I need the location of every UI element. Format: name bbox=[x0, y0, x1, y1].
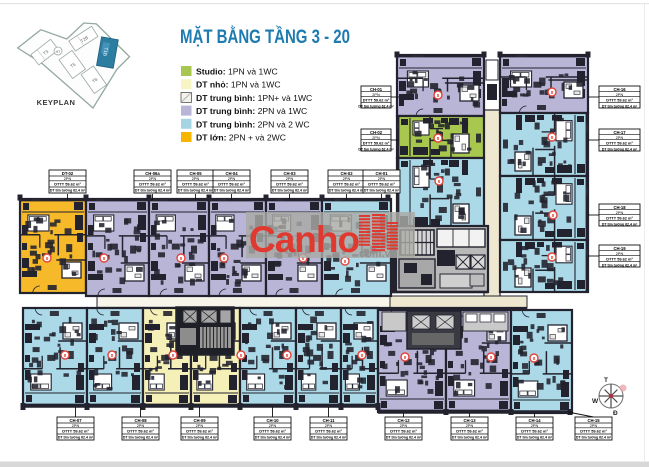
svg-text:DT tim tường 62.4 m²: DT tim tường 62.4 m² bbox=[452, 435, 488, 439]
svg-text:CH-11: CH-11 bbox=[323, 418, 336, 423]
svg-text:DTTT 59.62 m²: DTTT 59.62 m² bbox=[363, 98, 390, 103]
svg-text:DTTT 59.62 m²: DTTT 59.62 m² bbox=[368, 182, 395, 187]
svg-text:2PN: 2PN bbox=[192, 177, 200, 181]
svg-text:DT tim tường 62.4 m²: DT tim tường 62.4 m² bbox=[123, 435, 159, 439]
svg-text:2PN: 2PN bbox=[616, 136, 624, 140]
svg-text:Canho: Canho bbox=[249, 219, 360, 260]
svg-text:DT tim tường 62.4 m²: DT tim tường 62.4 m² bbox=[135, 188, 171, 192]
svg-text:CH-09: CH-09 bbox=[193, 418, 206, 423]
svg-text:2PN: 2PN bbox=[378, 177, 386, 181]
svg-text:CH-18: CH-18 bbox=[613, 205, 626, 210]
svg-text:DT trung bình: 2PN và 1WC: DT trung bình: 2PN và 1WC bbox=[196, 106, 307, 116]
svg-text:DTTT 59.62 m²: DTTT 59.62 m² bbox=[390, 429, 417, 434]
svg-text:CH-07: CH-07 bbox=[69, 418, 82, 423]
svg-text:CH-04: CH-04 bbox=[225, 171, 238, 176]
svg-text:DTTT 59.62 m²: DTTT 59.62 m² bbox=[127, 429, 154, 434]
svg-text:DT tim tường 62.4 m²: DT tim tường 62.4 m² bbox=[272, 188, 308, 192]
svg-text:DT tim tường 62.4 m²: DT tim tường 62.4 m² bbox=[602, 147, 638, 151]
svg-text:DT tim tường 62.4 m²: DT tim tường 62.4 m² bbox=[255, 435, 291, 439]
svg-text:CH-17: CH-17 bbox=[613, 130, 626, 135]
svg-text:CH-01: CH-01 bbox=[370, 87, 383, 92]
svg-text:DTTT 59.62 m²: DTTT 59.62 m² bbox=[218, 182, 245, 187]
svg-text:2PN: 2PN bbox=[531, 424, 539, 428]
svg-text:DT trung bình: 1PN+ và 1WC: DT trung bình: 1PN+ và 1WC bbox=[196, 93, 312, 103]
svg-text:2PN: 2PN bbox=[149, 177, 157, 181]
svg-text:2PN: 2PN bbox=[616, 252, 624, 256]
svg-text:2PN: 2PN bbox=[325, 424, 333, 428]
svg-text:CH-06a: CH-06a bbox=[145, 171, 160, 176]
svg-text:2PN: 2PN bbox=[72, 424, 80, 428]
svg-text:Studio: 1PN và 1WC: Studio: 1PN và 1WC bbox=[196, 67, 278, 77]
svg-text:DTTT 59.62 m²: DTTT 59.62 m² bbox=[606, 257, 633, 262]
svg-text:CH-08: CH-08 bbox=[134, 418, 147, 423]
svg-text:DTTT 59.62 m²: DTTT 59.62 m² bbox=[333, 182, 360, 187]
svg-text:DT tim tường 62.4 m²: DT tim tường 62.4 m² bbox=[364, 188, 400, 192]
svg-text:2PN: 2PN bbox=[616, 211, 624, 215]
svg-text:CH-16: CH-16 bbox=[613, 87, 626, 92]
svg-text:DTTT 59.62 m²: DTTT 59.62 m² bbox=[62, 429, 89, 434]
svg-text:DT tim tường 62.4 m²: DT tim tường 62.4 m² bbox=[602, 222, 638, 226]
svg-text:2PN: 2PN bbox=[228, 177, 236, 181]
svg-text:2PN: 2PN bbox=[286, 177, 294, 181]
svg-text:2PN: 2PN bbox=[343, 177, 351, 181]
svg-text:DTTT 59.62 m²: DTTT 59.62 m² bbox=[276, 182, 303, 187]
svg-text:DT tim tường 62.4 m²: DT tim tường 62.4 m² bbox=[311, 435, 347, 439]
svg-text:2PN: 2PN bbox=[372, 136, 380, 140]
svg-text:DT tim tường 62.4 m²: DT tim tường 62.4 m² bbox=[178, 188, 214, 192]
svg-text:2PN: 2PN bbox=[196, 424, 204, 428]
svg-text:2PN: 2PN bbox=[466, 424, 474, 428]
svg-text:CH-05: CH-05 bbox=[189, 171, 202, 176]
svg-text:DTTT 59.62 m²: DTTT 59.62 m² bbox=[139, 182, 166, 187]
svg-text:DTTT 59.62 m²: DTTT 59.62 m² bbox=[521, 429, 548, 434]
svg-text:DT tim tường 62.4 m²: DT tim tường 62.4 m² bbox=[182, 435, 218, 439]
svg-text:CH-03: CH-03 bbox=[283, 171, 296, 176]
svg-text:DT tim tường 62.4 m²: DT tim tường 62.4 m² bbox=[517, 435, 553, 439]
svg-text:CH-10: CH-10 bbox=[266, 418, 279, 423]
svg-text:DT nhỏ: 1PN và 1WC: DT nhỏ: 1PN và 1WC bbox=[196, 80, 281, 90]
svg-text:T: T bbox=[604, 377, 608, 384]
svg-text:DTTT 59.62 m²: DTTT 59.62 m² bbox=[606, 98, 633, 103]
svg-text:DT-02: DT-02 bbox=[62, 171, 74, 176]
svg-text:2PN: 2PN bbox=[137, 424, 145, 428]
svg-text:2PN: 2PN bbox=[616, 93, 624, 97]
svg-text:2PN: 2PN bbox=[372, 93, 380, 97]
svg-text:DT tim tường 62.4 m²: DT tim tường 62.4 m² bbox=[358, 147, 394, 151]
svg-text:2PN: 2PN bbox=[400, 424, 408, 428]
svg-text:CH-01: CH-01 bbox=[375, 171, 388, 176]
svg-text:DTTT 59.62 m²: DTTT 59.62 m² bbox=[456, 429, 483, 434]
svg-text:DTTT 59.62 m²: DTTT 59.62 m² bbox=[580, 429, 607, 434]
svg-text:KEYPLAN: KEYPLAN bbox=[37, 98, 76, 107]
svg-text:DT tim tường 62.4 m²: DT tim tường 62.4 m² bbox=[576, 435, 612, 439]
svg-text:DTTT 59.62 m²: DTTT 59.62 m² bbox=[606, 216, 633, 221]
svg-text:DT tim tường 62.4 m²: DT tim tường 62.4 m² bbox=[214, 188, 250, 192]
svg-text:DT tim tường 62.4 m²: DT tim tường 62.4 m² bbox=[58, 435, 94, 439]
svg-text:DT tim tường 62.4 m²: DT tim tường 62.4 m² bbox=[50, 188, 86, 192]
svg-text:DT tim tường 62.4 m²: DT tim tường 62.4 m² bbox=[386, 435, 422, 439]
svg-text:com.vn: com.vn bbox=[359, 248, 398, 260]
svg-text:MẶT BẰNG TẦNG 3 - 20: MẶT BẰNG TẦNG 3 - 20 bbox=[180, 26, 350, 48]
svg-text:DTTT 59.62 m²: DTTT 59.62 m² bbox=[182, 182, 209, 187]
svg-text:2PN: 2PN bbox=[590, 424, 598, 428]
svg-text:CH-02: CH-02 bbox=[370, 130, 383, 135]
svg-text:DT trung bình: 2PN và 2 WC: DT trung bình: 2PN và 2 WC bbox=[196, 119, 310, 129]
svg-text:CH-13: CH-13 bbox=[463, 418, 476, 423]
svg-text:CH-19: CH-19 bbox=[613, 246, 626, 251]
svg-text:DT tim tường 62.4 m²: DT tim tường 62.4 m² bbox=[358, 104, 394, 108]
svg-text:DTTT 59.62 m²: DTTT 59.62 m² bbox=[54, 182, 81, 187]
svg-text:CH-14: CH-14 bbox=[528, 418, 541, 423]
svg-text:CH-15: CH-15 bbox=[587, 418, 600, 423]
svg-text:CH-02: CH-02 bbox=[340, 171, 353, 176]
svg-text:DTTT 59.62 m²: DTTT 59.62 m² bbox=[186, 429, 213, 434]
svg-text:DT tim tường 62.4 m²: DT tim tường 62.4 m² bbox=[602, 104, 638, 108]
svg-text:CH-12: CH-12 bbox=[397, 418, 410, 423]
svg-text:DTTT 59.62 m²: DTTT 59.62 m² bbox=[315, 429, 342, 434]
svg-text:DT lớn: 2PN + và 2WC: DT lớn: 2PN + và 2WC bbox=[196, 133, 286, 143]
svg-text:DTTT 59.62 m²: DTTT 59.62 m² bbox=[606, 141, 633, 146]
svg-text:DTTT 59.62 m²: DTTT 59.62 m² bbox=[259, 429, 286, 434]
svg-text:DTTT 59.62 m²: DTTT 59.62 m² bbox=[363, 141, 390, 146]
svg-text:Đ: Đ bbox=[613, 410, 618, 417]
svg-text:2PN: 2PN bbox=[269, 424, 277, 428]
svg-text:2PN: 2PN bbox=[64, 177, 72, 181]
svg-text:W: W bbox=[592, 398, 599, 405]
svg-text:DT tim tường 62.4 m²: DT tim tường 62.4 m² bbox=[602, 263, 638, 267]
svg-text:DT tim tường 62.4 m²: DT tim tường 62.4 m² bbox=[329, 188, 365, 192]
